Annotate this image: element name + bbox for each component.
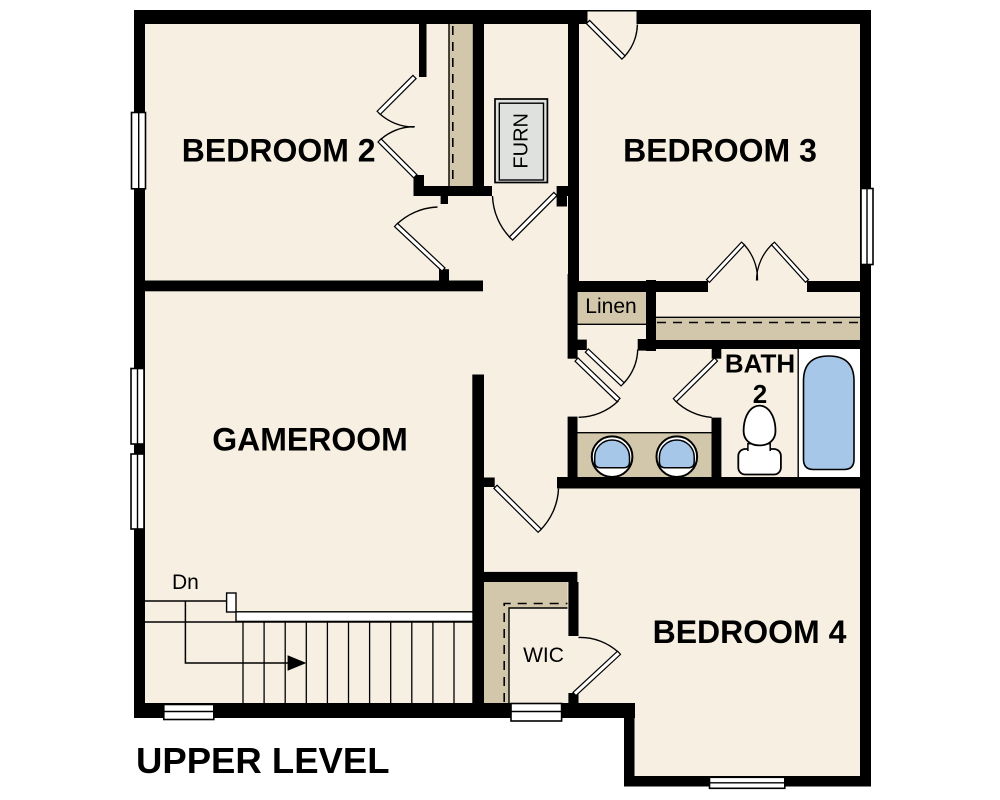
- svg-text:FURN: FURN: [510, 113, 532, 169]
- svg-text:BATH: BATH: [725, 349, 795, 379]
- svg-text:GAMEROOM: GAMEROOM: [212, 422, 408, 458]
- svg-text:BEDROOM 3: BEDROOM 3: [623, 133, 817, 169]
- svg-text:Dn: Dn: [172, 571, 199, 594]
- svg-text:UPPER LEVEL: UPPER LEVEL: [136, 740, 390, 781]
- svg-text:Linen: Linen: [585, 295, 636, 318]
- svg-text:BEDROOM 4: BEDROOM 4: [653, 614, 847, 650]
- svg-text:BEDROOM 2: BEDROOM 2: [182, 133, 376, 169]
- svg-text:WIC: WIC: [523, 644, 564, 667]
- svg-text:2: 2: [753, 379, 767, 409]
